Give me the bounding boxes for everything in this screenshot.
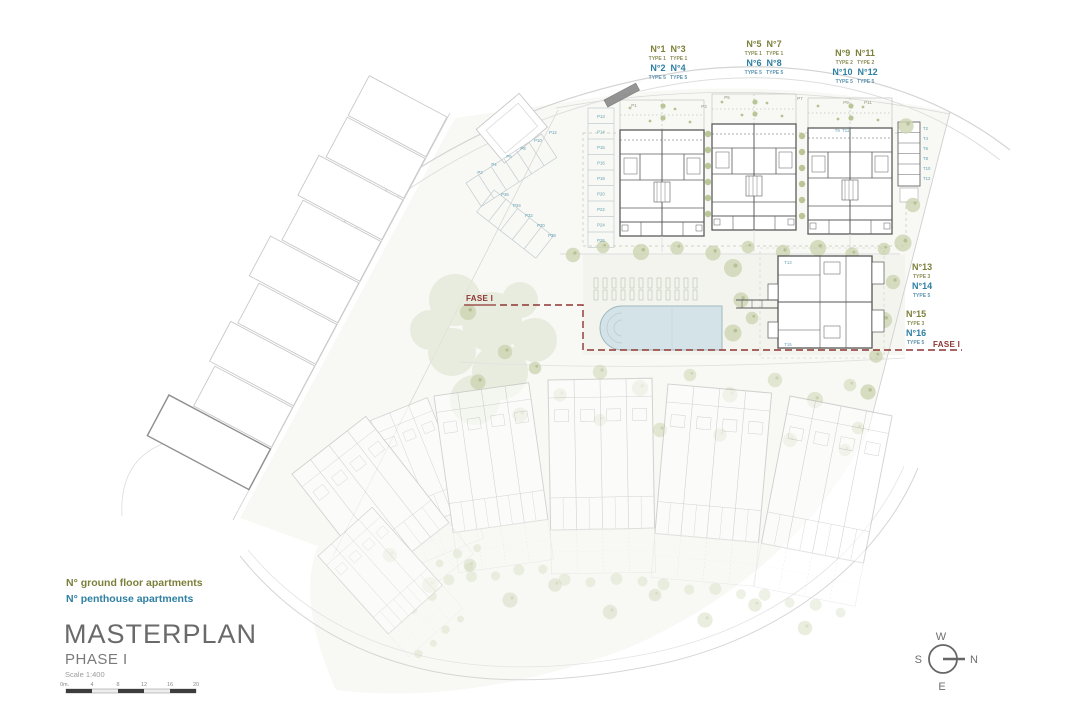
parking-label: P4 (491, 162, 497, 167)
parking-label: P26 (597, 238, 605, 243)
scale-text: Scale 1:400 (65, 670, 105, 679)
compass-east-label: E (938, 681, 945, 693)
parking-label: P22 (597, 207, 605, 212)
storage-units (898, 122, 920, 202)
garden-label: P5 (724, 95, 730, 100)
parking-label: P24 (597, 223, 605, 228)
compass-rose: W N S E (915, 631, 978, 693)
penthouse-type-14: TYPE 5 (913, 293, 930, 299)
parking-label: P16 (597, 161, 605, 166)
penthouse-numbers-10-12: N°10 N°12 (832, 67, 877, 77)
storage-label: T6 (923, 146, 929, 151)
ground-number-15: N°15 (906, 309, 926, 319)
scale-bar-segment (66, 689, 92, 693)
ground-numbers-1-3: N°1 N°3 (650, 44, 685, 54)
compass-south-label: S (915, 654, 922, 666)
garden-label: P3 (701, 104, 707, 109)
penthouse-number-16: N°16 (906, 328, 926, 338)
scale-bar-segment (170, 689, 196, 693)
group-labels-n9-12: N°9 N°11 TYPE 2 TYPE 2 N°10 N°12 TYPE 5 … (832, 48, 877, 85)
legend-penthouse: N° penthouse apartments (66, 593, 193, 605)
fase-label-left: FASE I (466, 294, 493, 303)
parking-label: P34 (513, 203, 521, 208)
parking-label: P10 (534, 138, 542, 143)
t13-label: T13 (784, 260, 792, 265)
parking-label: P15 (597, 145, 605, 150)
penthouse-numbers-2-4: N°2 N°4 (650, 63, 685, 73)
ground-types-5-7: TYPE 1 TYPE 1 (745, 51, 784, 57)
compass-west-label: W (936, 631, 947, 643)
ground-numbers-5-7: N°5 N°7 (746, 39, 781, 49)
storage-label: T10 (923, 166, 931, 171)
storage-label: T8 (923, 156, 929, 161)
penthouse-type-16: TYPE 5 (907, 340, 924, 346)
storage-label: T2 (923, 126, 929, 131)
penthouse-types-6-8: TYPE 5 TYPE 5 (745, 70, 784, 76)
ground-numbers-9-11: N°9 N°11 (835, 48, 875, 58)
scale-tick: 8 (116, 682, 119, 688)
scale-tick: 0m. (60, 682, 70, 688)
swimming-pool (600, 306, 722, 350)
parking-label: P12 (549, 130, 557, 135)
parking-label: P2 (477, 170, 483, 175)
parking-label: P28 (548, 233, 556, 238)
parking-label: P36 (501, 192, 509, 197)
scale-bar: 0m. 4 8 12 16 20 (60, 682, 199, 693)
ground-types-1-3: TYPE 1 TYPE 1 (649, 56, 688, 62)
parking-label: P30 (537, 223, 545, 228)
penthouse-numbers-6-8: N°6 N°8 (746, 58, 781, 68)
penthouse-types-2-4: TYPE 5 TYPE 5 (649, 75, 688, 81)
group-labels-n15-16: N°15 TYPE 3 N°16 TYPE 5 (906, 309, 926, 346)
storage-label: T4 (923, 136, 929, 141)
ground-type-13: TYPE 3 (913, 274, 930, 280)
scale-tick: 20 (193, 682, 199, 688)
garden-label: P9 (843, 100, 849, 105)
scale-bar-segment (118, 689, 144, 693)
garden-label: P1 (631, 103, 637, 108)
scale-tick: 12 (141, 682, 147, 688)
site-plan-drawing: FASE I FASE I N°1 N°3 TYPE 1 TYPE 1 N°2 … (0, 0, 1080, 720)
legend-ground-floor: N° ground floor apartments (66, 577, 203, 589)
garden-label: P7 (797, 96, 803, 101)
group-labels-n13-14: N°13 TYPE 3 N°14 TYPE 5 (912, 262, 932, 299)
parking-label: P32 (525, 213, 533, 218)
group-labels-n5-8: N°5 N°7 TYPE 1 TYPE 1 N°6 N°8 TYPE 5 TYP… (745, 39, 784, 76)
parking-label: P8 (520, 146, 526, 151)
page-title: MASTERPLAN (64, 619, 257, 649)
phase-title: PHASE I (65, 651, 128, 668)
legend: N° ground floor apartments N° penthouse … (66, 577, 203, 605)
storage-label: T12 (923, 176, 931, 181)
ground-types-9-11: TYPE 2 TYPE 2 (836, 60, 875, 66)
scale-tick: 4 (90, 682, 93, 688)
parking-label: P14 (597, 130, 605, 135)
masterplan-page: FASE I FASE I N°1 N°3 TYPE 1 TYPE 1 N°2 … (0, 0, 1080, 720)
scale-tick: 16 (167, 682, 173, 688)
fase-label-right: FASE I (933, 340, 960, 349)
parking-label: P18 (597, 176, 605, 181)
compass-north-label: N (970, 654, 978, 666)
penthouse-types-10-12: TYPE 5 TYPE 5 (836, 79, 875, 85)
east-group-labels: N°13 TYPE 3 N°14 TYPE 5 N°15 TYPE 3 N°16… (906, 262, 932, 346)
group-labels-n1-4: N°1 N°3 TYPE 1 TYPE 1 N°2 N°4 TYPE 5 TYP… (649, 44, 688, 81)
garden-label: P11 (864, 100, 872, 105)
ground-number-13: N°13 (912, 262, 932, 272)
parking-label: P6 (506, 154, 512, 159)
ground-type-15: TYPE 3 (907, 321, 924, 327)
t-pair-label: T9 T11 (835, 128, 850, 133)
parking-label: P13 (597, 114, 605, 119)
title-block: MASTERPLAN PHASE I Scale 1:400 (64, 619, 257, 679)
penthouse-number-14: N°14 (912, 281, 932, 291)
t15-label: T15 (784, 342, 792, 347)
parking-label: P20 (597, 192, 605, 197)
